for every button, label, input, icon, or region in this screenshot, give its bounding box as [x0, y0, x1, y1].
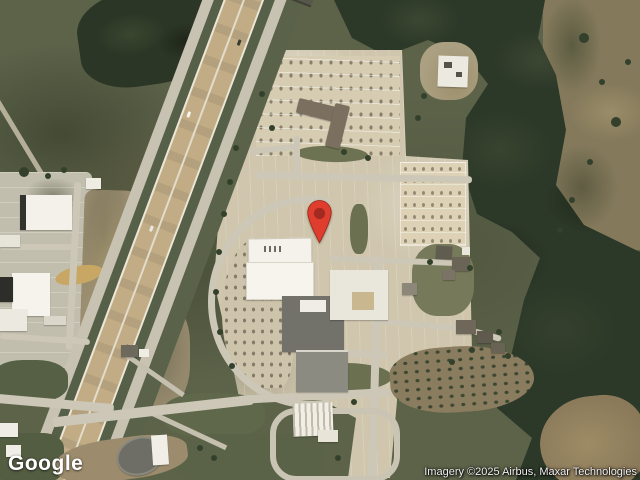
building	[443, 270, 455, 280]
building	[437, 55, 468, 87]
rooftop-section	[456, 72, 462, 77]
rooftop-section	[352, 292, 374, 310]
building	[402, 283, 417, 295]
grass-median	[350, 204, 368, 254]
building	[151, 434, 169, 465]
building	[452, 257, 470, 271]
map-pin-icon	[307, 200, 332, 244]
trees	[0, 0, 6, 6]
road	[294, 136, 300, 178]
building	[462, 247, 470, 255]
building	[139, 349, 149, 357]
building	[121, 345, 138, 357]
retail-building	[44, 316, 66, 325]
retail-building	[0, 277, 13, 302]
google-logo[interactable]: Google	[8, 452, 83, 476]
imagery-attribution: Imagery ©2025 Airbus, Maxar Technologies	[424, 466, 637, 478]
rooftop-section	[444, 62, 452, 68]
satellite-map[interactable]: Google Imagery ©2025 Airbus, Maxar Techn…	[0, 0, 640, 480]
road-loop	[270, 408, 400, 480]
location-marker-icon[interactable]	[307, 200, 332, 244]
building	[436, 245, 453, 259]
retail-building	[0, 235, 20, 247]
building	[477, 331, 493, 343]
hotel-wing	[318, 430, 338, 442]
rooftop-section	[300, 300, 326, 312]
rooftop-units	[264, 246, 282, 252]
retail-building	[20, 195, 72, 230]
hospital-wing	[296, 350, 348, 392]
building	[0, 423, 18, 437]
building	[491, 343, 505, 353]
retail-building	[0, 309, 27, 331]
retail-building	[86, 178, 101, 189]
hospital-building	[246, 262, 314, 300]
building	[456, 320, 476, 334]
